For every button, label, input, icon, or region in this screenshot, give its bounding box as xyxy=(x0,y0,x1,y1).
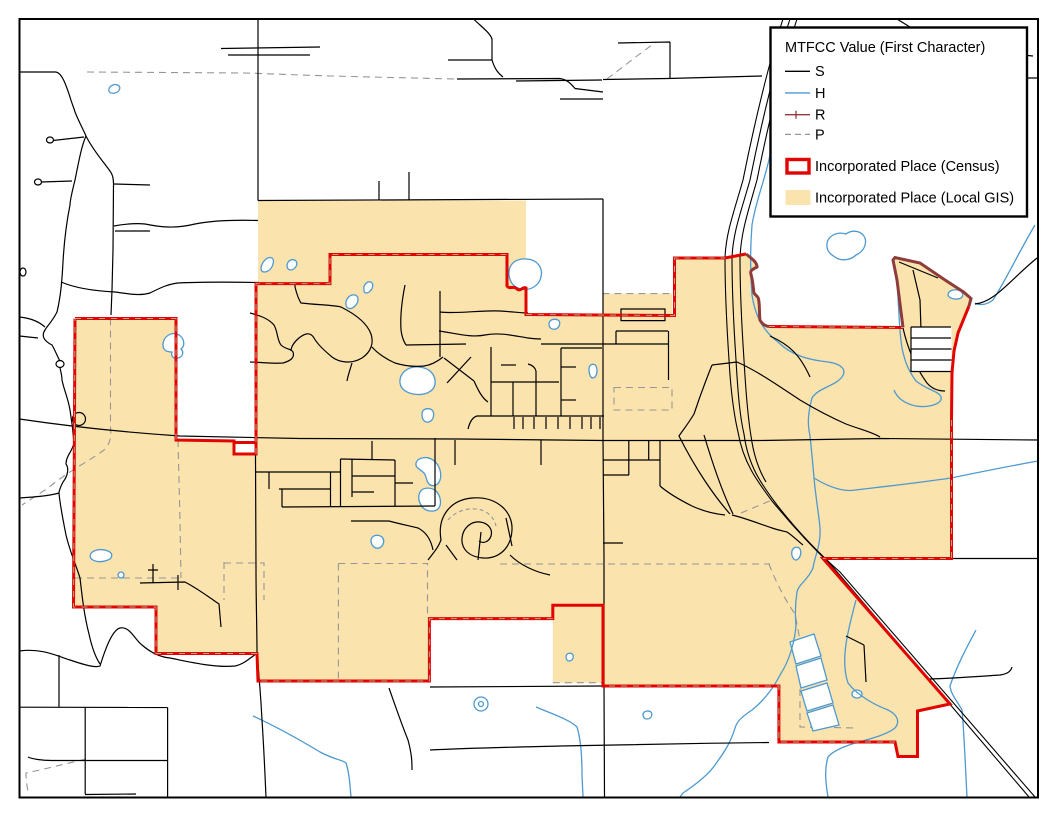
svg-text:S: S xyxy=(815,64,825,80)
svg-text:R: R xyxy=(815,108,825,124)
svg-text:Incorporated Place (Census): Incorporated Place (Census) xyxy=(815,159,1000,175)
svg-text:H: H xyxy=(815,86,825,102)
svg-text:MTFCC Value (First Character): MTFCC Value (First Character) xyxy=(785,40,985,56)
svg-text:P: P xyxy=(815,128,825,144)
svg-text:Incorporated Place (Local GIS): Incorporated Place (Local GIS) xyxy=(815,191,1014,207)
